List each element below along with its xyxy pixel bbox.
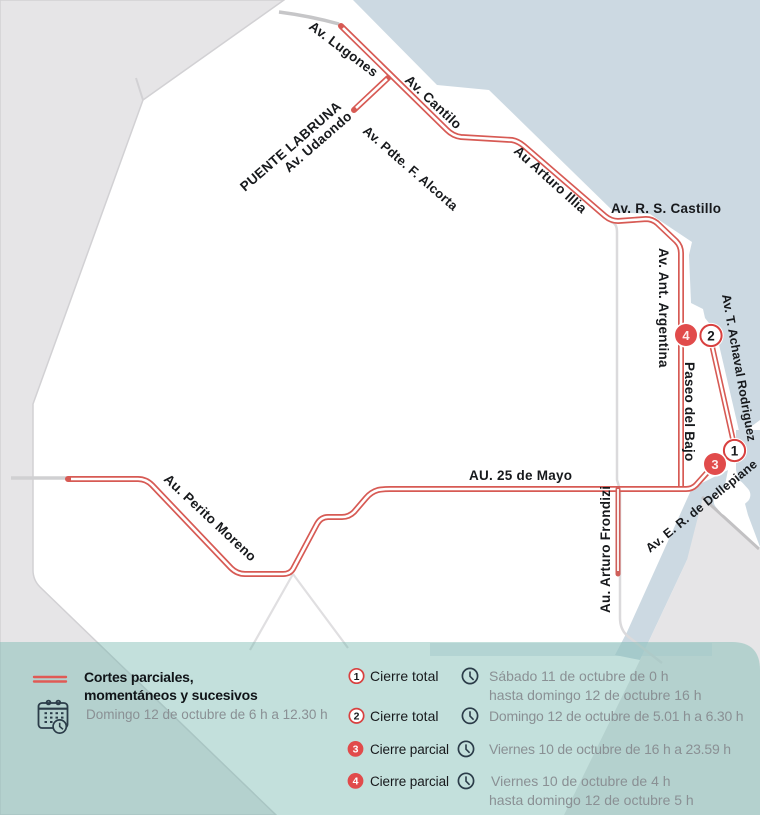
svg-text:Av. Ant. Argentina: Av. Ant. Argentina <box>656 248 671 368</box>
svg-text:Domingo 12 de octubre de 5.01: Domingo 12 de octubre de 5.01 h a 6.30 h <box>489 708 743 724</box>
svg-text:Cortes parciales,: Cortes parciales, <box>84 669 193 685</box>
svg-text:Au. Arturo Frondizi: Au. Arturo Frondizi <box>598 486 613 613</box>
svg-text:Av. R. S. Castillo: Av. R. S. Castillo <box>611 201 721 216</box>
svg-text:Domingo 12 de octubre de 6 h a: Domingo 12 de octubre de 6 h a 12.30 h <box>86 707 328 722</box>
svg-text:Cierre parcial: Cierre parcial <box>370 742 449 757</box>
svg-text:hasta domingo 12 de octubre 16: hasta domingo 12 de octubre 16 h <box>489 687 702 703</box>
svg-text:Cierre parcial: Cierre parcial <box>370 774 449 789</box>
svg-text:Paseo del Bajo: Paseo del Bajo <box>682 362 697 462</box>
svg-text:3: 3 <box>711 457 718 472</box>
svg-text:momentáneos y sucesivos: momentáneos y sucesivos <box>84 687 258 703</box>
svg-text:1: 1 <box>731 443 739 458</box>
svg-text:hasta domingo 12 de octubre 5: hasta domingo 12 de octubre 5 h <box>489 792 694 808</box>
svg-text:Cierre total: Cierre total <box>370 708 438 724</box>
svg-text:Cierre total: Cierre total <box>370 668 438 684</box>
svg-text:4: 4 <box>682 328 690 343</box>
svg-text:Viernes 10 de octubre de 16 h: Viernes 10 de octubre de 16 h a 23.59 h <box>489 741 731 757</box>
svg-text:Sábado 11 de octubre de 0 h: Sábado 11 de octubre de 0 h <box>489 668 669 684</box>
svg-text:2: 2 <box>354 711 360 723</box>
svg-text:2: 2 <box>707 328 715 343</box>
svg-text:1: 1 <box>354 671 360 683</box>
svg-text:3: 3 <box>353 744 359 756</box>
svg-text:AU. 25 de Mayo: AU. 25 de Mayo <box>469 468 572 483</box>
svg-text:Viernes 10 de octubre de 4 h: Viernes 10 de octubre de 4 h <box>491 773 671 789</box>
svg-text:4: 4 <box>353 776 359 788</box>
